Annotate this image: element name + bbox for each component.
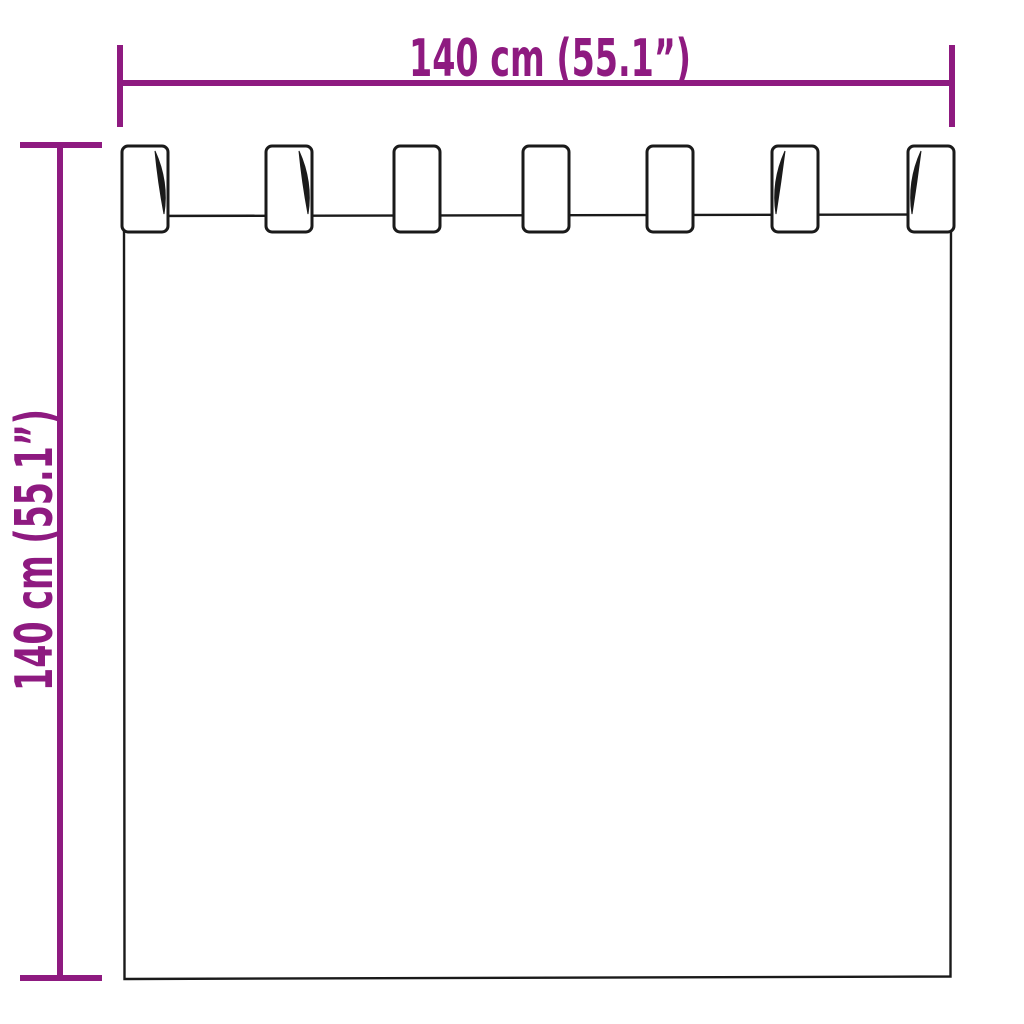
width-dimension-label: 140 cm (55.1”) bbox=[409, 29, 691, 89]
curtain-tab-7 bbox=[908, 146, 954, 232]
curtain-tab-3 bbox=[394, 146, 440, 232]
curtain-dimension-diagram: 140 cm (55.1”) 140 cm (55.1”) bbox=[0, 0, 1024, 1024]
curtain-panel bbox=[124, 215, 951, 980]
diagram-canvas: 140 cm (55.1”) 140 cm (55.1”) bbox=[0, 0, 1024, 1024]
height-dimension-label: 140 cm (55.1”) bbox=[5, 409, 65, 691]
curtain-tab-5 bbox=[647, 146, 693, 232]
curtain-tab-1 bbox=[122, 146, 168, 232]
tab-loop bbox=[647, 146, 693, 232]
tab-loop bbox=[394, 146, 440, 232]
curtain-tab-4 bbox=[523, 146, 569, 232]
width-dimension: 140 cm (55.1”) bbox=[117, 29, 955, 127]
tab-loop bbox=[523, 146, 569, 232]
height-dimension: 140 cm (55.1”) bbox=[5, 142, 102, 981]
curtain-outline bbox=[122, 146, 954, 979]
curtain-tab-2 bbox=[266, 146, 312, 232]
curtain-tab-6 bbox=[772, 146, 818, 232]
